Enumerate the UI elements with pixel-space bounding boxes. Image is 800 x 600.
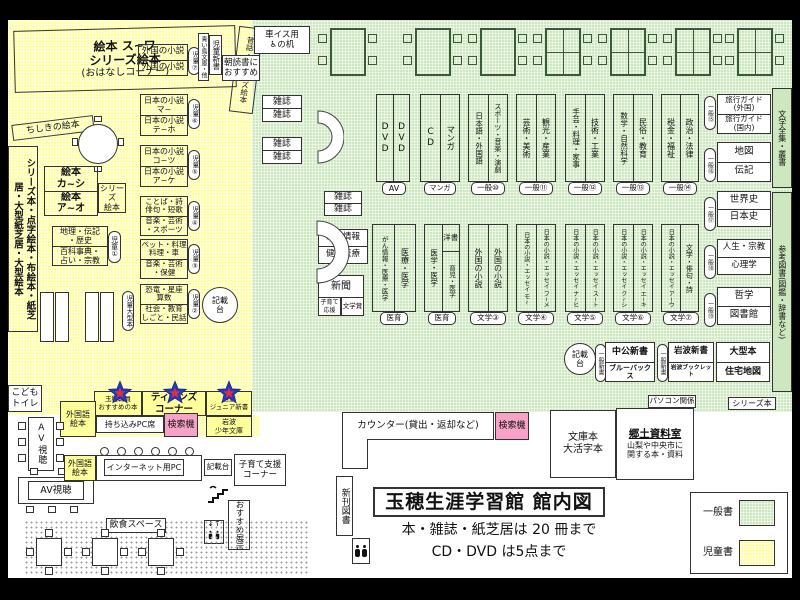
low-shelf — [85, 292, 99, 342]
reading-table — [480, 28, 516, 76]
shelf-tag-literature-4: 文学④ — [518, 312, 554, 325]
maps-biography-shelf: 地図 伝記 — [717, 142, 771, 182]
dining-table — [148, 538, 174, 566]
shelf-tag-literature-6: 文学⑥ — [615, 312, 651, 325]
new-books-shelf: 新刊図書 — [336, 476, 353, 536]
legend: 一般書 児童書 — [690, 492, 788, 574]
children-cap-4: 児童④ — [188, 201, 200, 231]
history-shelf: 世界史 日本史 — [717, 191, 771, 227]
shelf-general-13: 数学・自然科学 民俗・教育 — [613, 94, 653, 182]
shelf-general-10: 日本語・外国語 スポーツ・音楽・演劇 — [468, 94, 508, 182]
shelf-tag-medical-1: 医育 — [380, 312, 408, 325]
dining-table — [92, 538, 118, 566]
star-icon — [216, 380, 242, 406]
shelf-tag-general-10: 一般⑩ — [471, 182, 505, 195]
low-shelf — [40, 292, 54, 342]
av-booth-label: AV視聴 — [28, 481, 84, 500]
writing-stand-entrance: 記載台 — [204, 459, 232, 476]
series-picturebook-shelf: シリーズ 絵本 — [98, 183, 126, 213]
rule-av: CD・DVD は5点まで — [373, 541, 625, 561]
legend-general-swatch — [739, 500, 775, 526]
low-shelf — [100, 292, 114, 342]
star-icon — [162, 380, 188, 406]
star-icon — [107, 380, 133, 406]
magazine-rack: 雑誌 雑誌 — [262, 137, 302, 164]
children-science-society-shelf: 恐竜・星座 算数 社会・教育 しごと・民話 — [140, 284, 188, 324]
shelf-general-14: 税金・福祉 政治・法律 — [661, 94, 699, 182]
shelf-tag-literature-3: 文学③ — [470, 312, 506, 325]
shelf-tag-literature-5: 文学⑤ — [567, 312, 603, 325]
legend-children-swatch — [739, 540, 775, 566]
philosophy-shelf: 哲学 図書館 — [717, 287, 771, 325]
shelf-tag-general-13: 一般⑬ — [616, 182, 650, 195]
reading-table — [415, 28, 451, 76]
search-terminal-main[interactable]: 検索機 — [495, 412, 529, 440]
magazine-rack: 雑誌 雑誌 — [262, 95, 302, 122]
writing-stand-children: 記載 台 — [202, 287, 238, 323]
reading-table — [737, 28, 773, 76]
rule-books: 本・雑誌・紙芝居は 20 冊まで — [373, 519, 625, 537]
reference-books-shelf: 参考図書(図鑑・辞書など) — [772, 192, 792, 392]
map-title: 玉穂生涯学習館 館内図 — [373, 487, 605, 517]
iwanami-shinsho-shelf: 岩波新書 岩波ブックレット — [668, 342, 714, 382]
children-pets-cooking-shelf: ペット・料理 料理・車 音楽・芸術 ・保健 — [140, 239, 188, 279]
shelf-general-11: 芸術・美術 観光・産業 — [516, 94, 556, 182]
side-cap-15: 一般⑮ — [704, 96, 716, 130]
shelf-tag-medical-2: 医育 — [428, 312, 456, 325]
magazine-rack: 雑誌 雑誌 — [324, 191, 362, 216]
chair — [118, 138, 124, 146]
reading-table — [330, 28, 366, 76]
round-table — [78, 124, 118, 164]
curved-shelf — [312, 218, 350, 286]
shelf-cd-manga: CD マンガ — [420, 94, 460, 182]
side-cap-16: 一般⑯ — [704, 148, 716, 182]
children-words-arts-shelf: ことば・詩 俳句・短歌 音楽・芸術 ・スポーツ — [140, 196, 188, 236]
parenting-support-shelf: 子育て 応援 — [318, 297, 341, 316]
reading-table — [545, 28, 581, 76]
local-history-room: 郷土資料室 山梨や中央市に 関する本・資料 — [616, 408, 694, 480]
shelf-tag-general-12: 一般⑫ — [568, 182, 602, 195]
map-canvas: 絵本 ス~ワ シリーズ絵本 (おはなしコーナー) 昔話・シリーズ絵本 ちしきの絵… — [8, 20, 792, 578]
picturebook-shelf: 絵本 カ~シ 絵本 ア~オ — [44, 166, 98, 216]
side-cap-17: 一般⑰ — [704, 197, 716, 231]
bluebird-bunko-shelf: 青い鳥文庫・他 — [198, 33, 209, 81]
shelf-literature-6: 日本の小説・エッセイ ク~シ 日本の小説・エッセイ エ~キ — [613, 224, 653, 312]
children-cap-5: 児童⑤ — [188, 150, 200, 180]
iwanami-shonen-bunko-shelf: 岩波 少年文庫 — [206, 416, 252, 437]
children-reference-shelf: 地理・伝記 ・歴史 百科事典・ 占い・宗教 — [52, 226, 108, 266]
children-cap-3: 児童③ — [188, 244, 200, 274]
stairs-icon — [206, 482, 230, 504]
foreign-picturebook-shelf: 外国語 絵本 — [60, 401, 96, 437]
side-cap-18: 一般⑱ — [704, 245, 716, 279]
byod-pc-seats: 持ち込みPC席 — [96, 416, 164, 433]
shelf-tag-manga: マンガ — [424, 182, 456, 195]
children-cap-2: 児童② — [188, 289, 200, 319]
shelf-literature-5: 日本の小説・エッセイ ナ~ヒ 日本の小説・エッセイ ス~ト — [565, 224, 605, 312]
series-books-label: シリーズ本 — [728, 397, 776, 410]
reading-table — [610, 28, 646, 76]
writing-stand-general: 記載 台 — [564, 343, 596, 375]
restroom-icon — [352, 538, 370, 564]
children-jp-fiction-shelf-5: 日本の小説 コ~ツ 日本の小説 ア~ケ — [140, 145, 188, 187]
lending-counter: カウンター(貸出・返却など) — [342, 412, 494, 440]
shelf-literature-7: 日本の小説・エッセイ ア~ウ 文学・俳句・詩 — [661, 224, 699, 312]
shelf-general-12: 手芸・料理・家事 技術・工業 — [565, 94, 605, 182]
floor-map-screenshot: 絵本 ス~ワ シリーズ絵本 (おはなしコーナー) 昔話・シリーズ絵本 ちしきの絵… — [0, 0, 800, 600]
bunko-large-print-area: 文庫本 大活字本 — [550, 410, 616, 478]
search-terminal-teens[interactable]: 検索機 — [164, 413, 198, 437]
foreign-picturebook-shelf-2: 外国語 絵本 — [64, 455, 96, 481]
dining-table — [36, 538, 62, 566]
shelf-literature-4: 日本の小説・エッセイ モ~ 日本の小説・エッセイ フ~メ — [516, 224, 556, 312]
children-cap-6: 児童⑥ — [188, 99, 200, 129]
life-religion-shelf: 人生・宗教 心理学 — [717, 239, 771, 275]
legend-general-label: 一般書 — [703, 507, 733, 519]
children-shinsho-shelf: 児童新書 — [209, 35, 222, 75]
kids-toilet: こども トイレ — [8, 385, 42, 412]
shelf-medical-2: 医学・医学 洋書 育児・医学 — [424, 224, 460, 312]
shelf-tag-general-14: 一般⑭ — [663, 182, 697, 195]
curved-shelf — [314, 108, 344, 166]
large-books-shelf: 大型本 住宅地図 — [716, 342, 770, 382]
lending-counter-leg — [342, 439, 368, 469]
shelf-tag-literature-7: 文学⑦ — [663, 312, 699, 325]
side-cap-19: 一般⑲ — [704, 293, 716, 327]
shinsho-cap-b: 一般新書 — [657, 344, 668, 382]
av-booth-table: AV視聴 — [28, 417, 54, 471]
children-foreign-fiction-shelf: 外国の小説 外国の小説 — [138, 44, 188, 76]
shelf-tag-av: AV — [382, 182, 406, 195]
chuko-shinsho-shelf: 中公新書 ブルーバックス — [605, 342, 655, 382]
chair — [94, 116, 102, 122]
parenting-support-corner: 子育て支援 コーナー — [234, 454, 286, 486]
wheelchair-desk: 車イス用 ♿の机 — [254, 26, 310, 54]
literary-award-shelf: 文学賞 — [341, 297, 364, 316]
shelf-literature-3: 外国の小説 外国の小説 — [468, 224, 508, 312]
series-braille-bigbook-shelf: シリーズ本・点字絵本・布絵本・紙芝居・大型紙芝居・大型絵本 — [8, 146, 38, 332]
travel-guide-shelf: 旅行ガイド (外国) 旅行ガイド (国内) — [717, 94, 771, 134]
children-cap-1: 児童① — [108, 231, 121, 263]
children-jp-fiction-shelf-6: 日本の小説 マ~ 日本の小説 テ~ホ — [140, 94, 188, 136]
shelf-tag-general-11: 一般⑪ — [519, 182, 553, 195]
chair — [72, 138, 78, 146]
shelf-medical-1: がん情報・医療・医学 医療・医学 — [372, 224, 416, 312]
pc-related-label: パソコン関係 — [648, 395, 696, 408]
children-bigbook-cap: 児童大型本 — [122, 291, 134, 331]
reading-table — [675, 28, 711, 76]
literature-complete-works-shelf: 文学全集・叢書 — [772, 88, 792, 188]
legend-children-label: 児童書 — [703, 547, 733, 559]
morning-reading-picks: 朝読書に おすすめ — [222, 55, 260, 81]
low-shelf — [55, 292, 69, 342]
shelf-av: DVD DVD — [376, 94, 410, 182]
internet-pc-label: インターネット用PC — [104, 459, 184, 476]
